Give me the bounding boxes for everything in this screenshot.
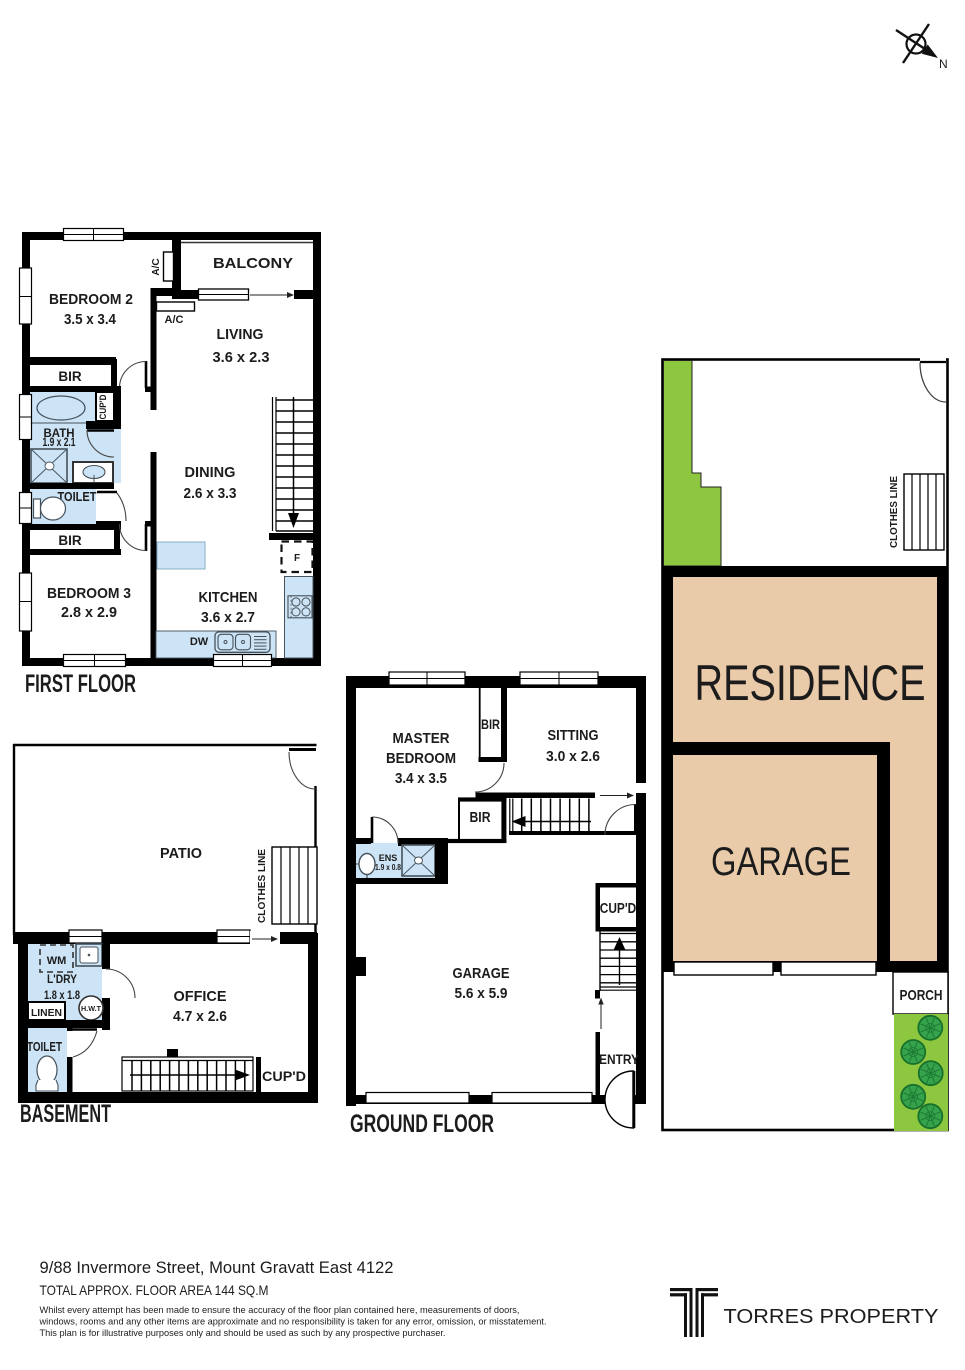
svg-text:BEDROOM: BEDROOM: [386, 750, 456, 767]
svg-text:3.5 x 3.4: 3.5 x 3.4: [64, 311, 117, 328]
svg-text:2.6 x 3.3: 2.6 x 3.3: [184, 485, 237, 502]
svg-text:WM: WM: [47, 955, 67, 967]
svg-text:CLOTHES LINE: CLOTHES LINE: [888, 476, 900, 548]
svg-text:OFFICE: OFFICE: [174, 988, 227, 1005]
svg-text:A/C: A/C: [151, 258, 162, 275]
svg-text:BASEMENT: BASEMENT: [20, 1100, 111, 1128]
svg-text:CLOTHES LINE: CLOTHES LINE: [256, 849, 268, 923]
svg-text:PORCH: PORCH: [900, 987, 943, 1004]
svg-text:ENTRY: ENTRY: [599, 1052, 639, 1067]
svg-text:9/88 Invermore Street, Mount G: 9/88 Invermore Street, Mount Gravatt Eas…: [40, 1258, 394, 1277]
svg-text:LIVING: LIVING: [217, 326, 264, 343]
svg-text:F: F: [294, 553, 300, 564]
svg-text:3.6 x 2.7: 3.6 x 2.7: [201, 609, 255, 626]
svg-text:3.4 x 3.5: 3.4 x 3.5: [395, 770, 447, 787]
svg-text:BIR: BIR: [470, 809, 491, 826]
svg-text:2.8 x 2.9: 2.8 x 2.9: [61, 604, 117, 621]
svg-text:A/C: A/C: [165, 314, 184, 326]
svg-text:BALCONY: BALCONY: [213, 255, 293, 272]
svg-text:LINEN: LINEN: [31, 1007, 62, 1019]
svg-text:CUP'D: CUP'D: [600, 901, 637, 917]
svg-text:DW: DW: [190, 636, 209, 648]
svg-text:KITCHEN: KITCHEN: [199, 589, 258, 606]
svg-text:BIR: BIR: [58, 533, 82, 548]
svg-text:L'DRY: L'DRY: [47, 972, 77, 986]
svg-text:Whilst every attempt has been: Whilst every attempt has been made to en…: [40, 1305, 520, 1316]
svg-text:5.6 x 5.9: 5.6 x 5.9: [455, 985, 508, 1002]
svg-text:BIR: BIR: [481, 716, 500, 732]
svg-text:H.W.T: H.W.T: [81, 1004, 101, 1013]
svg-text:DINING: DINING: [185, 464, 236, 481]
svg-text:FIRST FLOOR: FIRST FLOOR: [25, 670, 136, 698]
svg-text:N: N: [939, 57, 948, 71]
svg-text:4.7 x 2.6: 4.7 x 2.6: [173, 1008, 227, 1025]
svg-text:TOILET: TOILET: [27, 1040, 62, 1054]
svg-text:BIR: BIR: [58, 369, 82, 384]
svg-text:MASTER: MASTER: [393, 730, 450, 747]
svg-text:CUP'D: CUP'D: [98, 394, 108, 419]
svg-text:RESIDENCE: RESIDENCE: [695, 655, 926, 711]
svg-text:1.8 x 1.8: 1.8 x 1.8: [44, 990, 80, 1002]
svg-text:GROUND FLOOR: GROUND FLOOR: [350, 1110, 494, 1138]
svg-text:3.6 x 2.3: 3.6 x 2.3: [213, 349, 270, 366]
svg-text:TOTAL APPROX. FLOOR AREA 144 S: TOTAL APPROX. FLOOR AREA 144 SQ.M: [40, 1282, 269, 1298]
svg-text:CUP'D: CUP'D: [262, 1069, 306, 1084]
svg-text:windows, rooms and any other i: windows, rooms and any other items are a…: [39, 1317, 547, 1328]
svg-text:SITTING: SITTING: [548, 727, 599, 744]
svg-text:BEDROOM 2: BEDROOM 2: [49, 291, 133, 308]
svg-text:3.0 x 2.6: 3.0 x 2.6: [546, 748, 600, 765]
svg-text:PATIO: PATIO: [160, 845, 202, 862]
svg-text:GARAGE: GARAGE: [711, 840, 851, 884]
svg-text:BEDROOM 3: BEDROOM 3: [47, 585, 131, 602]
svg-text:1.9 x 0.8: 1.9 x 0.8: [375, 862, 401, 872]
svg-text:This plan is for illustrative: This plan is for illustrative purposes o…: [40, 1328, 446, 1339]
svg-text:GARAGE: GARAGE: [453, 965, 510, 982]
svg-text:1.9 x 2.1: 1.9 x 2.1: [43, 437, 76, 449]
svg-text:TORRES PROPERTY: TORRES PROPERTY: [724, 1306, 939, 1328]
